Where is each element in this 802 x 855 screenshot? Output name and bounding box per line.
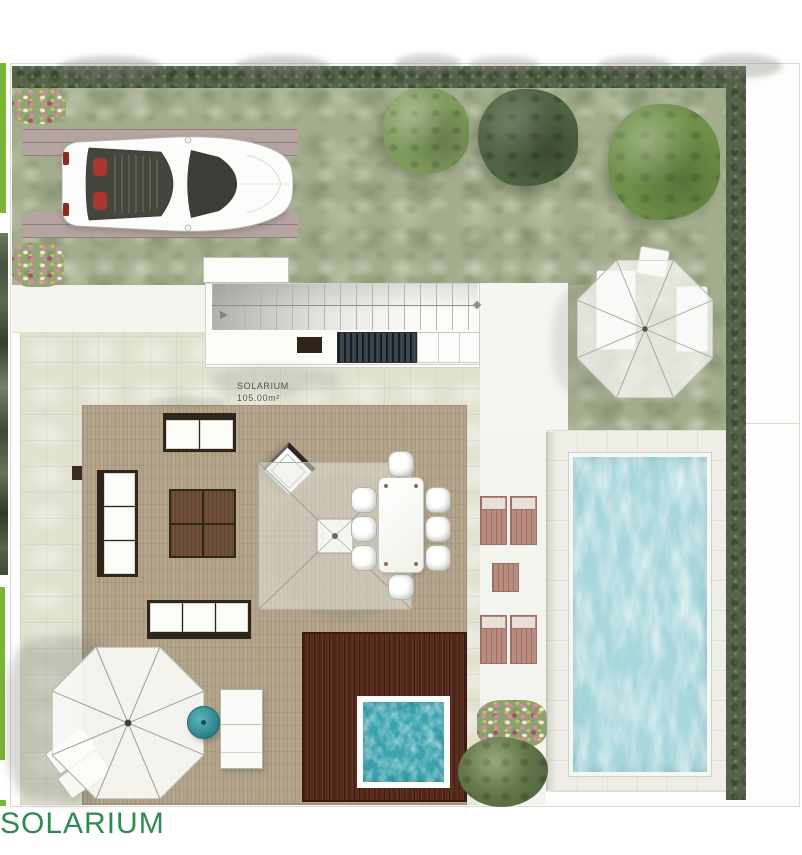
photo-strip [0, 233, 8, 575]
solarium-label-title: SOLARIUM [237, 381, 327, 393]
dining-chair [388, 574, 414, 600]
lounger-headrest [512, 617, 535, 629]
dining-chair [351, 487, 377, 513]
deck-shadow [150, 397, 225, 408]
teal-side-table [187, 706, 220, 739]
pool-water-texture [573, 457, 707, 772]
sofa-cushion [104, 541, 135, 574]
sofa-cushion [183, 603, 215, 632]
sofa-cushion [200, 420, 233, 449]
lounger-headrest [482, 498, 505, 510]
lounger-fold [221, 752, 262, 753]
tree-shadow [235, 55, 330, 77]
outdoor-sofa [97, 470, 138, 577]
table-panel [171, 491, 202, 523]
table-panel [204, 525, 235, 557]
table-fitting [384, 562, 388, 566]
page-caption: SOLARIUM [0, 802, 165, 846]
table-fitting [384, 484, 388, 488]
cabinet-divider [438, 333, 439, 362]
lounger-headrest [512, 498, 535, 510]
sofa-cushion [104, 507, 135, 540]
brochure-page: SOLARIUM 105.00m² SOLARIUM [0, 0, 802, 855]
dining-chair [425, 545, 451, 571]
sun-lounger [220, 689, 263, 769]
swimming-pool [569, 453, 711, 776]
jacuzzi [363, 702, 444, 782]
lounger-fold [221, 724, 262, 725]
boundary-line [746, 423, 800, 424]
dining-table [378, 477, 424, 573]
garden-lounger [636, 246, 670, 279]
flower-bed [12, 243, 64, 287]
tree-shadow [698, 54, 782, 78]
table-fitting [414, 484, 418, 488]
storage-cabinets [417, 332, 480, 363]
tree-shadow [598, 56, 672, 74]
coffee-table [169, 489, 236, 558]
dining-chair [351, 516, 377, 542]
dining-chair [388, 451, 414, 477]
vent-grill [337, 332, 417, 363]
sofa-cushion [216, 603, 248, 632]
garden-tree [383, 88, 469, 174]
terrace-band [12, 285, 205, 333]
flower-bed [12, 88, 66, 124]
dining-chair [425, 516, 451, 542]
garden-tree [608, 104, 720, 220]
jacuzzi-water-texture [363, 702, 444, 782]
sofa-cushion [166, 420, 199, 449]
tree-shadow [58, 56, 162, 80]
stair-landing [203, 257, 289, 283]
solarium-label-area: 105.00m² [237, 393, 327, 405]
outdoor-sofa [147, 600, 251, 639]
garden-lounger [676, 286, 708, 352]
pool-deck-shadow [546, 432, 557, 790]
table-fitting [414, 562, 418, 566]
wood-lounger [480, 496, 507, 545]
sofa-cushion [104, 473, 135, 506]
solarium-area-label: SOLARIUM 105.00m² [237, 381, 327, 404]
lounger-headrest [482, 617, 505, 629]
sports-car-top-view [55, 135, 293, 233]
wood-lounger [480, 615, 507, 664]
accent-bar-bottom [0, 587, 5, 760]
garden-lounger [596, 270, 636, 350]
tree-shadow [395, 54, 461, 74]
garden-tree [478, 89, 578, 186]
stair-direction-arrow [220, 311, 228, 319]
dining-chair [351, 545, 377, 571]
outdoor-sofa [163, 413, 236, 452]
doormat [297, 337, 322, 353]
dining-chair [425, 487, 451, 513]
wood-lounger [510, 615, 537, 664]
staircase [212, 284, 478, 330]
table-panel [171, 525, 202, 557]
deck-fixture [72, 466, 82, 480]
hedge-right [726, 85, 746, 800]
accent-bar-top [0, 63, 6, 213]
wood-side-table [492, 563, 519, 592]
table-center [201, 720, 206, 725]
cabinet-divider [459, 333, 460, 362]
tree-shadow [468, 56, 540, 74]
utility-baseline [206, 364, 479, 365]
handrail [212, 305, 478, 306]
sofa-cushion [150, 603, 182, 632]
table-panel [204, 491, 235, 523]
wood-lounger [510, 496, 537, 545]
